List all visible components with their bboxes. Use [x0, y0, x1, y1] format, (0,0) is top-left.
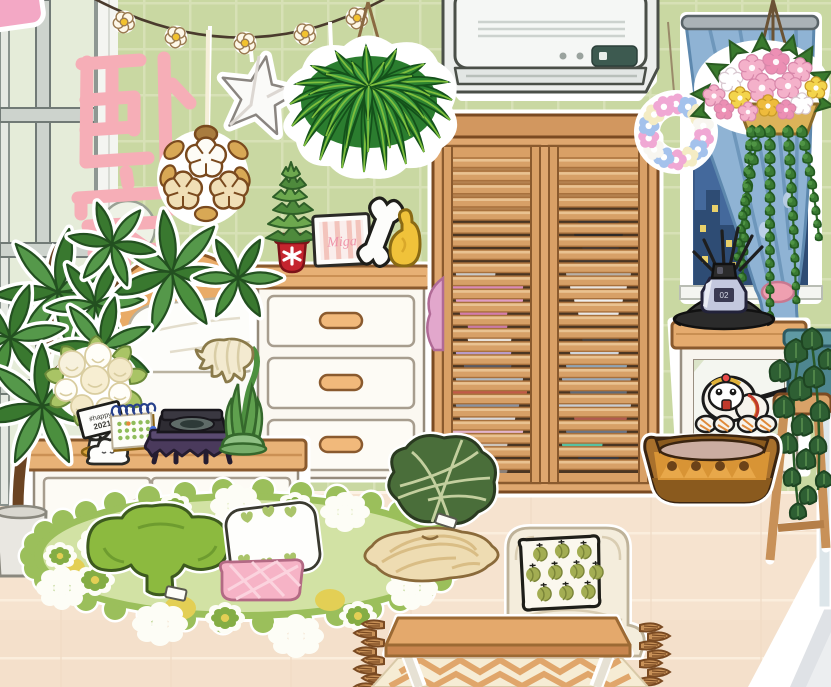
svg-text:02: 02	[720, 291, 729, 300]
svg-text:Miga: Miga	[326, 234, 357, 251]
